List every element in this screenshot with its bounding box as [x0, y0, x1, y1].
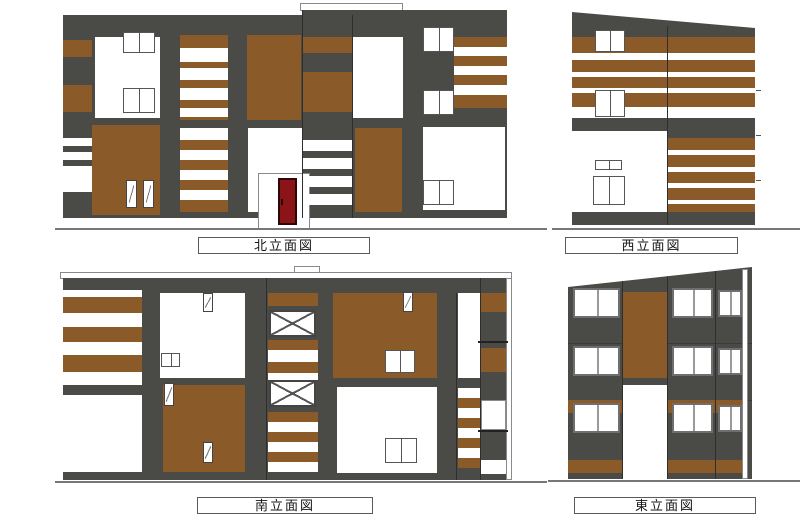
- label-text: 東立面図: [635, 499, 695, 512]
- window: [718, 290, 742, 317]
- wall-joint-line: [715, 267, 716, 479]
- accent-column: [622, 292, 667, 378]
- window: [718, 348, 742, 375]
- wall-joint-line: [622, 267, 623, 479]
- corner-trim: [742, 269, 748, 479]
- label-east-elevation: 東立面図: [574, 497, 756, 514]
- white-column: [622, 385, 667, 479]
- window: [672, 346, 713, 376]
- siding-stripe: [568, 460, 622, 473]
- siding-stripe: [667, 460, 742, 473]
- wall-joint-line: [667, 267, 668, 479]
- window: [573, 288, 620, 318]
- window: [672, 288, 713, 318]
- ground-line: [548, 480, 800, 482]
- window: [573, 346, 620, 376]
- window: [718, 405, 742, 432]
- window: [573, 403, 620, 433]
- east-elevation-drawing: 東立面図: [0, 0, 800, 518]
- building-body: [568, 267, 752, 479]
- elevation-sheet: 北立面図 西立面図: [0, 0, 800, 518]
- window: [672, 403, 713, 433]
